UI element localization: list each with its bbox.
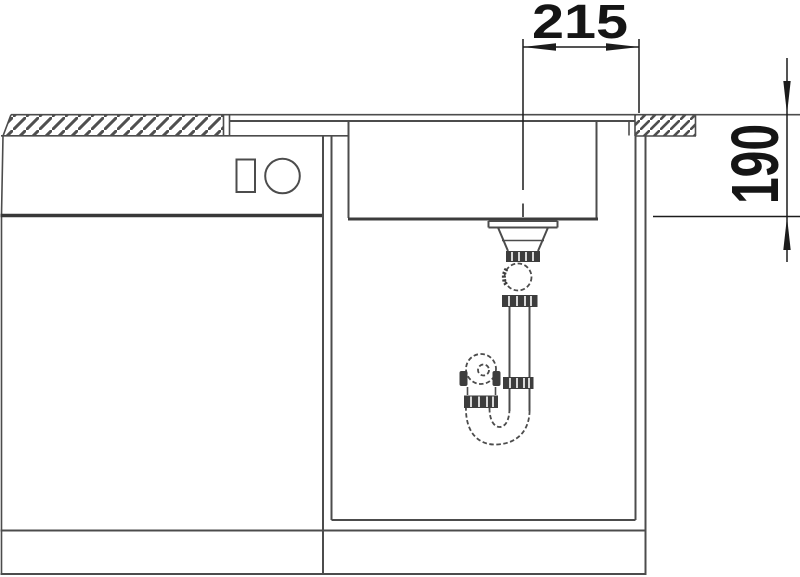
trap-bend-outer bbox=[466, 406, 530, 445]
dimension-horizontal: 215 bbox=[523, 0, 639, 217]
siphon-trap bbox=[460, 354, 534, 445]
dishwasher-cabinet bbox=[1, 136, 349, 574]
dim-h-label: 215 bbox=[532, 0, 628, 49]
trap-clip-left bbox=[460, 371, 468, 386]
sink-bowl bbox=[348, 121, 598, 219]
dim-v-arrow-bottom bbox=[783, 217, 790, 250]
drain-threaded-collar bbox=[506, 251, 540, 262]
trap-inlet-curl-inner bbox=[478, 365, 489, 376]
trap-clip-right bbox=[493, 371, 501, 386]
drain-elbow-joint bbox=[505, 264, 532, 291]
drain-tailpipe bbox=[510, 307, 530, 411]
trap-bend-inner bbox=[490, 408, 510, 427]
sink-installation-diagram: 215 190 bbox=[0, 0, 800, 577]
drain-flange bbox=[489, 221, 558, 228]
dishwasher-control-display bbox=[237, 160, 256, 193]
drain-union-nut bbox=[502, 295, 538, 307]
trap-arm-links bbox=[468, 387, 496, 395]
drain-taper bbox=[498, 228, 548, 252]
countertop-left-section bbox=[3, 115, 230, 136]
dim-v-label: 190 bbox=[718, 124, 793, 204]
cabinet-left-edge bbox=[2, 136, 4, 574]
countertop-right-hatch bbox=[635, 114, 696, 136]
trap-inlet-curl-outer bbox=[466, 354, 496, 384]
dishwasher-control-knob bbox=[265, 159, 300, 194]
dimension-vertical: 190 bbox=[653, 58, 800, 262]
dim-v-arrow-top bbox=[783, 81, 790, 114]
technical-drawing: 215 190 bbox=[0, 0, 800, 577]
countertop-left-hatch bbox=[3, 115, 223, 136]
countertop-right-section bbox=[635, 114, 696, 136]
